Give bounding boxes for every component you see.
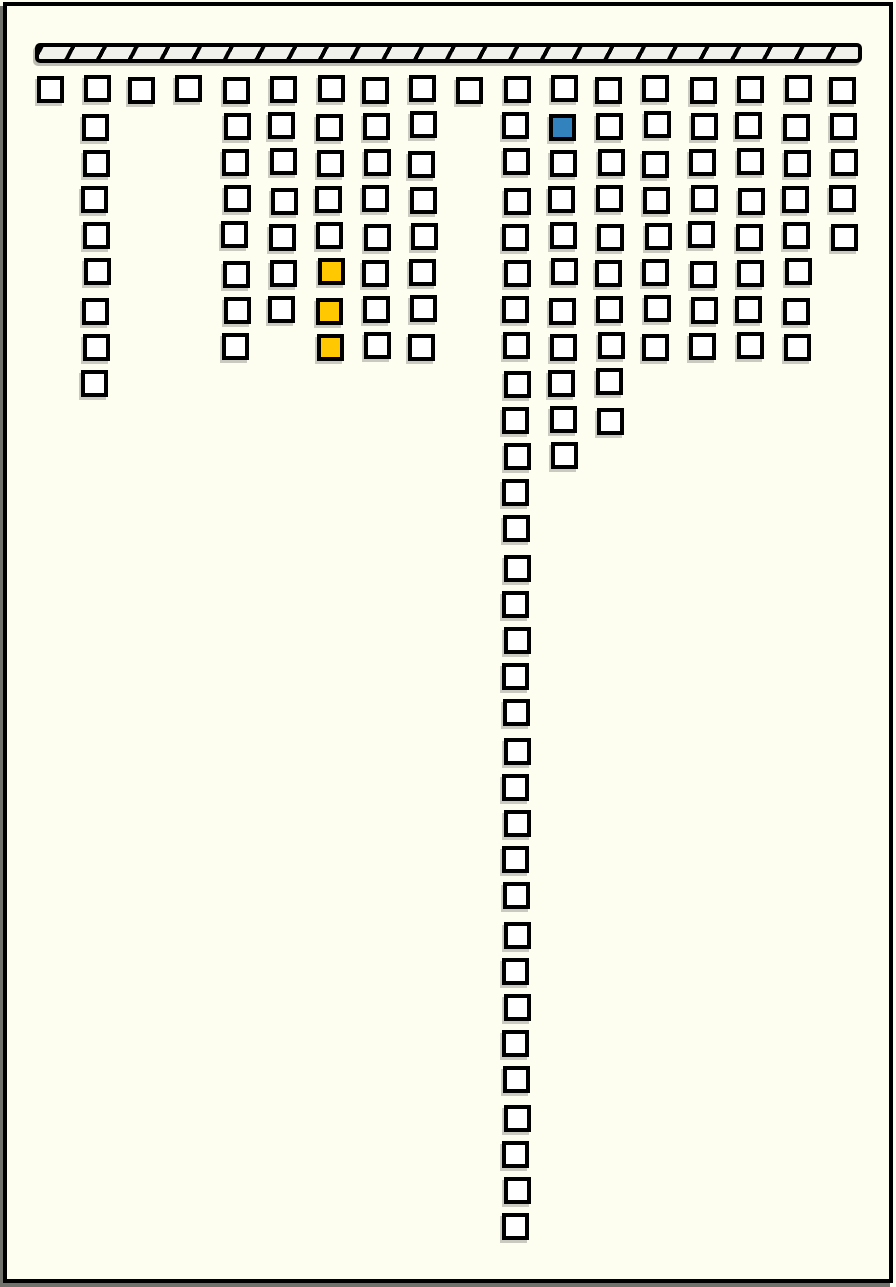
grid-square-c11-r30	[502, 1141, 529, 1168]
grid-square-c16-r8	[737, 332, 764, 359]
grid-square-c11-r24	[504, 922, 531, 949]
grid-square-c2-r9	[81, 370, 108, 397]
grid-square-c8-r1	[362, 77, 389, 104]
grid-square-c12-r7	[549, 298, 576, 325]
grid-square-c4-r1	[175, 75, 202, 102]
grid-square-c12-r1	[551, 75, 578, 102]
grid-square-c11-r10	[502, 407, 529, 434]
grid-square-c2-r7	[82, 298, 109, 325]
grid-square-c12-r10	[550, 406, 577, 433]
grid-square-c11-r21	[504, 810, 531, 837]
grid-square-c11-r1	[504, 76, 531, 103]
grid-square-c15-r2	[691, 113, 718, 140]
grid-square-c9-r1	[409, 75, 436, 102]
grid-square-c12-r8	[550, 334, 577, 361]
grid-square-c15-r1	[690, 77, 717, 104]
grid-square-c6-r6	[270, 260, 297, 287]
grid-square-c14-r1	[642, 75, 669, 102]
grid-square-c10-r1	[456, 77, 483, 104]
grid-square-c7-r6	[318, 258, 345, 285]
grid-square-c11-r3	[503, 148, 530, 175]
grid-square-c18-r3	[831, 149, 858, 176]
grid-square-c16-r3	[737, 148, 764, 175]
grid-square-c13-r5	[597, 224, 624, 251]
grid-square-c11-r8	[503, 332, 530, 359]
grid-square-c7-r8	[317, 334, 344, 361]
grid-square-c11-r11	[504, 443, 531, 470]
grid-square-c16-r5	[736, 224, 763, 251]
grid-square-c8-r8	[364, 332, 391, 359]
grid-square-c9-r3	[408, 151, 435, 178]
grid-square-c11-r5	[502, 224, 529, 251]
grid-square-c11-r22	[502, 846, 529, 873]
grid-square-c12-r2	[549, 114, 576, 141]
grid-square-c13-r4	[596, 185, 623, 212]
grid-square-c2-r2	[82, 114, 109, 141]
grid-square-c7-r7	[316, 298, 343, 325]
squares-layer	[0, 0, 896, 1287]
grid-square-c12-r3	[550, 150, 577, 177]
grid-square-c15-r3	[689, 149, 716, 176]
grid-square-c16-r4	[738, 188, 765, 215]
grid-square-c16-r1	[737, 76, 764, 103]
grid-square-c11-r14	[504, 555, 531, 582]
grid-square-c14-r8	[642, 334, 669, 361]
grid-square-c17-r4	[782, 186, 809, 213]
grid-square-c11-r15	[502, 591, 529, 618]
grid-square-c11-r29	[504, 1105, 531, 1132]
grid-square-c11-r20	[502, 774, 529, 801]
grid-square-c6-r7	[268, 296, 295, 323]
grid-square-c13-r10	[597, 408, 624, 435]
grid-square-c2-r1	[84, 75, 111, 102]
grid-square-c11-r9	[504, 371, 531, 398]
grid-square-c13-r2	[596, 113, 623, 140]
grid-square-c11-r16	[504, 627, 531, 654]
grid-square-c2-r6	[84, 258, 111, 285]
grid-square-c14-r2	[644, 111, 671, 138]
grid-square-c8-r6	[362, 260, 389, 287]
grid-square-c16-r2	[735, 112, 762, 139]
grid-square-c13-r7	[596, 296, 623, 323]
grid-square-c8-r7	[363, 296, 390, 323]
grid-square-c17-r6	[785, 258, 812, 285]
grid-square-c13-r1	[595, 77, 622, 104]
grid-square-c12-r9	[548, 370, 575, 397]
grid-square-c18-r5	[831, 224, 858, 251]
grid-square-c15-r4	[691, 185, 718, 212]
grid-square-c17-r8	[784, 334, 811, 361]
grid-square-c13-r9	[596, 368, 623, 395]
grid-square-c11-r31	[504, 1177, 531, 1204]
grid-square-c11-r32	[502, 1213, 529, 1240]
grid-square-c16-r6	[737, 260, 764, 287]
grid-square-c15-r7	[691, 297, 718, 324]
grid-square-c6-r5	[269, 224, 296, 251]
grid-square-c5-r2	[224, 113, 251, 140]
grid-square-c11-r6	[504, 260, 531, 287]
grid-square-c11-r27	[502, 1030, 529, 1057]
grid-square-c11-r19	[504, 738, 531, 765]
grid-square-c15-r8	[689, 333, 716, 360]
grid-square-c5-r8	[222, 333, 249, 360]
grid-square-c2-r8	[83, 334, 110, 361]
grid-square-c7-r5	[316, 222, 343, 249]
grid-square-c18-r2	[830, 113, 857, 140]
grid-square-c6-r3	[270, 148, 297, 175]
grid-square-c5-r6	[223, 261, 250, 288]
grid-square-c6-r1	[270, 76, 297, 103]
grid-square-c17-r2	[783, 114, 810, 141]
grid-square-c2-r5	[83, 222, 110, 249]
grid-square-c17-r3	[784, 150, 811, 177]
grid-square-c17-r1	[785, 75, 812, 102]
grid-square-c13-r6	[595, 260, 622, 287]
grid-square-c18-r4	[829, 185, 856, 212]
grid-square-c7-r3	[317, 150, 344, 177]
grid-square-c5-r1	[223, 77, 250, 104]
grid-square-c17-r7	[783, 298, 810, 325]
grid-square-c18-r1	[829, 77, 856, 104]
grid-square-c11-r26	[504, 994, 531, 1021]
grid-square-c14-r3	[642, 151, 669, 178]
grid-square-c8-r4	[362, 185, 389, 212]
grid-square-c9-r8	[408, 334, 435, 361]
grid-square-c3-r1	[128, 77, 155, 104]
grid-square-c2-r3	[83, 150, 110, 177]
grid-square-c9-r5	[411, 223, 438, 250]
grid-square-c14-r7	[644, 295, 671, 322]
grid-square-c6-r4	[271, 188, 298, 215]
grid-square-c14-r6	[642, 259, 669, 286]
grid-square-c12-r5	[550, 222, 577, 249]
grid-square-c13-r8	[598, 332, 625, 359]
grid-square-c7-r1	[318, 75, 345, 102]
grid-square-c16-r7	[735, 296, 762, 323]
grid-square-c5-r3	[222, 149, 249, 176]
grid-square-c13-r3	[598, 149, 625, 176]
grid-square-c17-r5	[783, 222, 810, 249]
grid-square-c14-r4	[643, 187, 670, 214]
grid-square-c11-r25	[502, 958, 529, 985]
grid-square-c12-r4	[548, 186, 575, 213]
grid-square-c9-r6	[409, 259, 436, 286]
grid-square-c8-r3	[364, 149, 391, 176]
grid-square-c1-r1	[37, 76, 64, 103]
grid-square-c2-r4	[81, 186, 108, 213]
grid-square-c5-r7	[224, 297, 251, 324]
grid-square-c11-r7	[502, 296, 529, 323]
grid-square-c14-r5	[645, 223, 672, 250]
grid-square-c11-r17	[502, 663, 529, 690]
grid-square-c11-r18	[503, 699, 530, 726]
grid-square-c11-r23	[503, 882, 530, 909]
grid-square-c11-r13	[503, 515, 530, 542]
grid-square-c9-r2	[410, 111, 437, 138]
grid-square-c9-r7	[410, 295, 437, 322]
grid-square-c6-r2	[268, 112, 295, 139]
grid-square-c9-r4	[410, 187, 437, 214]
grid-square-c15-r5	[688, 221, 715, 248]
grid-square-c5-r4	[224, 185, 251, 212]
grid-square-c11-r4	[504, 188, 531, 215]
grid-square-c8-r5	[364, 224, 391, 251]
grid-square-c11-r28	[503, 1066, 530, 1093]
grid-square-c7-r4	[315, 186, 342, 213]
grid-square-c12-r11	[551, 442, 578, 469]
grid-square-c5-r5	[221, 221, 248, 248]
grid-square-c8-r2	[363, 113, 390, 140]
grid-square-c11-r2	[502, 112, 529, 139]
grid-square-c7-r2	[316, 114, 343, 141]
grid-square-c11-r12	[502, 479, 529, 506]
grid-square-c12-r6	[551, 258, 578, 285]
grid-square-c15-r6	[690, 261, 717, 288]
